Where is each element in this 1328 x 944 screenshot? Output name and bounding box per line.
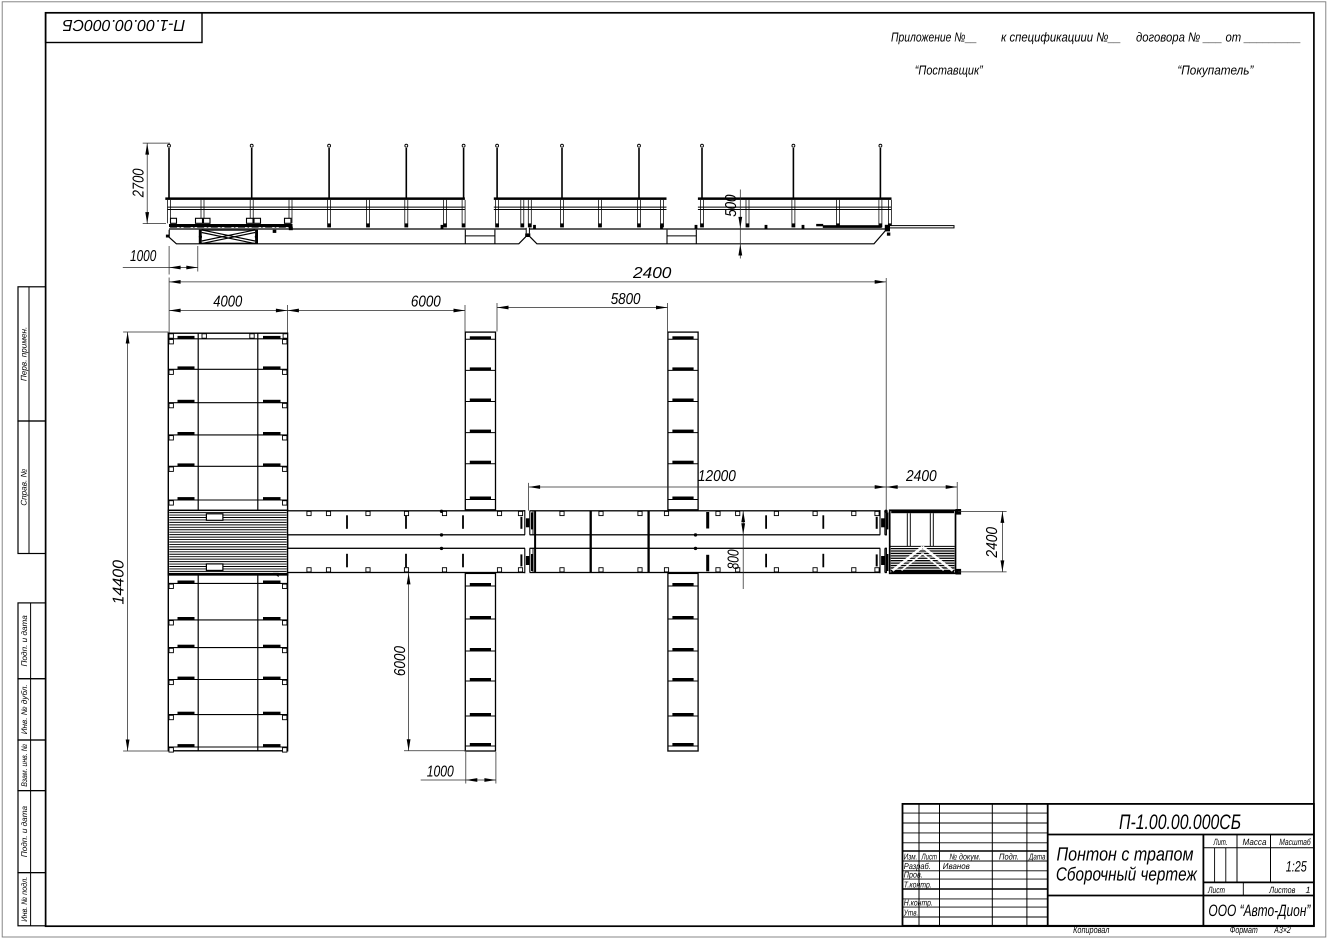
- svg-text:Лист: Лист: [921, 851, 937, 861]
- svg-text:800: 800: [725, 549, 742, 569]
- svg-text:Справ. №: Справ. №: [20, 468, 29, 505]
- svg-text:1: 1: [1306, 885, 1311, 895]
- svg-text:Дата: Дата: [1028, 851, 1045, 861]
- svg-text:П-1.00.00.000СБ: П-1.00.00.000СБ: [1119, 811, 1241, 834]
- svg-text:Копировал: Копировал: [1073, 925, 1110, 936]
- svg-text:№ докум.: № докум.: [949, 851, 980, 861]
- svg-text:Изм.: Изм.: [904, 851, 918, 861]
- svg-text:Пров.: Пров.: [904, 870, 923, 880]
- svg-text:5800: 5800: [611, 291, 641, 308]
- svg-text:Листов: Листов: [1269, 885, 1296, 895]
- svg-text:6000: 6000: [392, 646, 409, 676]
- svg-text:Иванов: Иванов: [943, 861, 971, 871]
- svg-text:Взам. инв. №: Взам. инв. №: [20, 744, 29, 787]
- svg-text:2400: 2400: [984, 527, 1001, 559]
- svg-text:“Покупатель”: “Покупатель”: [1177, 63, 1254, 78]
- svg-text:12000: 12000: [698, 468, 736, 485]
- svg-text:2700: 2700: [131, 168, 148, 198]
- svg-text:Инв. № подл.: Инв. № подл.: [20, 877, 29, 922]
- svg-text:Лит.: Лит.: [1213, 837, 1228, 847]
- svg-text:Масштаб: Масштаб: [1279, 837, 1311, 847]
- svg-text:договора № ___ от _________: договора № ___ от _________: [1136, 30, 1301, 45]
- svg-text:2400: 2400: [632, 265, 672, 282]
- svg-text:Приложение №__: Приложение №__: [891, 30, 977, 45]
- svg-text:6000: 6000: [411, 293, 441, 310]
- svg-text:1:25: 1:25: [1286, 859, 1307, 876]
- svg-text:Подп. и дата: Подп. и дата: [20, 615, 29, 667]
- svg-text:Сборочный чертеж: Сборочный чертеж: [1056, 865, 1198, 886]
- svg-text:Лист: Лист: [1207, 885, 1225, 895]
- svg-text:Инв. № дубл.: Инв. № дубл.: [20, 684, 29, 734]
- svg-text:1000: 1000: [427, 764, 454, 781]
- svg-text:Подп. и дата: Подп. и дата: [20, 806, 29, 858]
- svg-text:к спецификациии №__: к спецификациии №__: [1001, 30, 1121, 45]
- svg-text:“Поставщик”: “Поставщик”: [915, 63, 984, 78]
- svg-text:Утв.: Утв.: [903, 907, 918, 917]
- svg-text:14400: 14400: [111, 560, 128, 605]
- svg-text:1000: 1000: [130, 248, 156, 265]
- svg-text:А3×2: А3×2: [1274, 925, 1292, 936]
- svg-text:Т.контр.: Т.контр.: [904, 879, 932, 889]
- svg-text:Н.контр.: Н.контр.: [904, 898, 933, 908]
- svg-text:Понтон с трапом: Понтон с трапом: [1057, 845, 1194, 866]
- svg-text:Перв. примен.: Перв. примен.: [20, 327, 29, 381]
- svg-text:Масса: Масса: [1243, 837, 1267, 847]
- svg-text:4000: 4000: [213, 293, 242, 310]
- svg-text:500: 500: [723, 194, 740, 216]
- svg-text:2400: 2400: [905, 468, 937, 485]
- svg-text:Подп.: Подп.: [999, 851, 1019, 861]
- svg-text:Формат: Формат: [1230, 925, 1258, 936]
- svg-text:П-1.00.00.000СБ: П-1.00.00.000СБ: [62, 16, 185, 33]
- svg-text:ООО “Авто-Дион”: ООО “Авто-Дион”: [1208, 902, 1311, 920]
